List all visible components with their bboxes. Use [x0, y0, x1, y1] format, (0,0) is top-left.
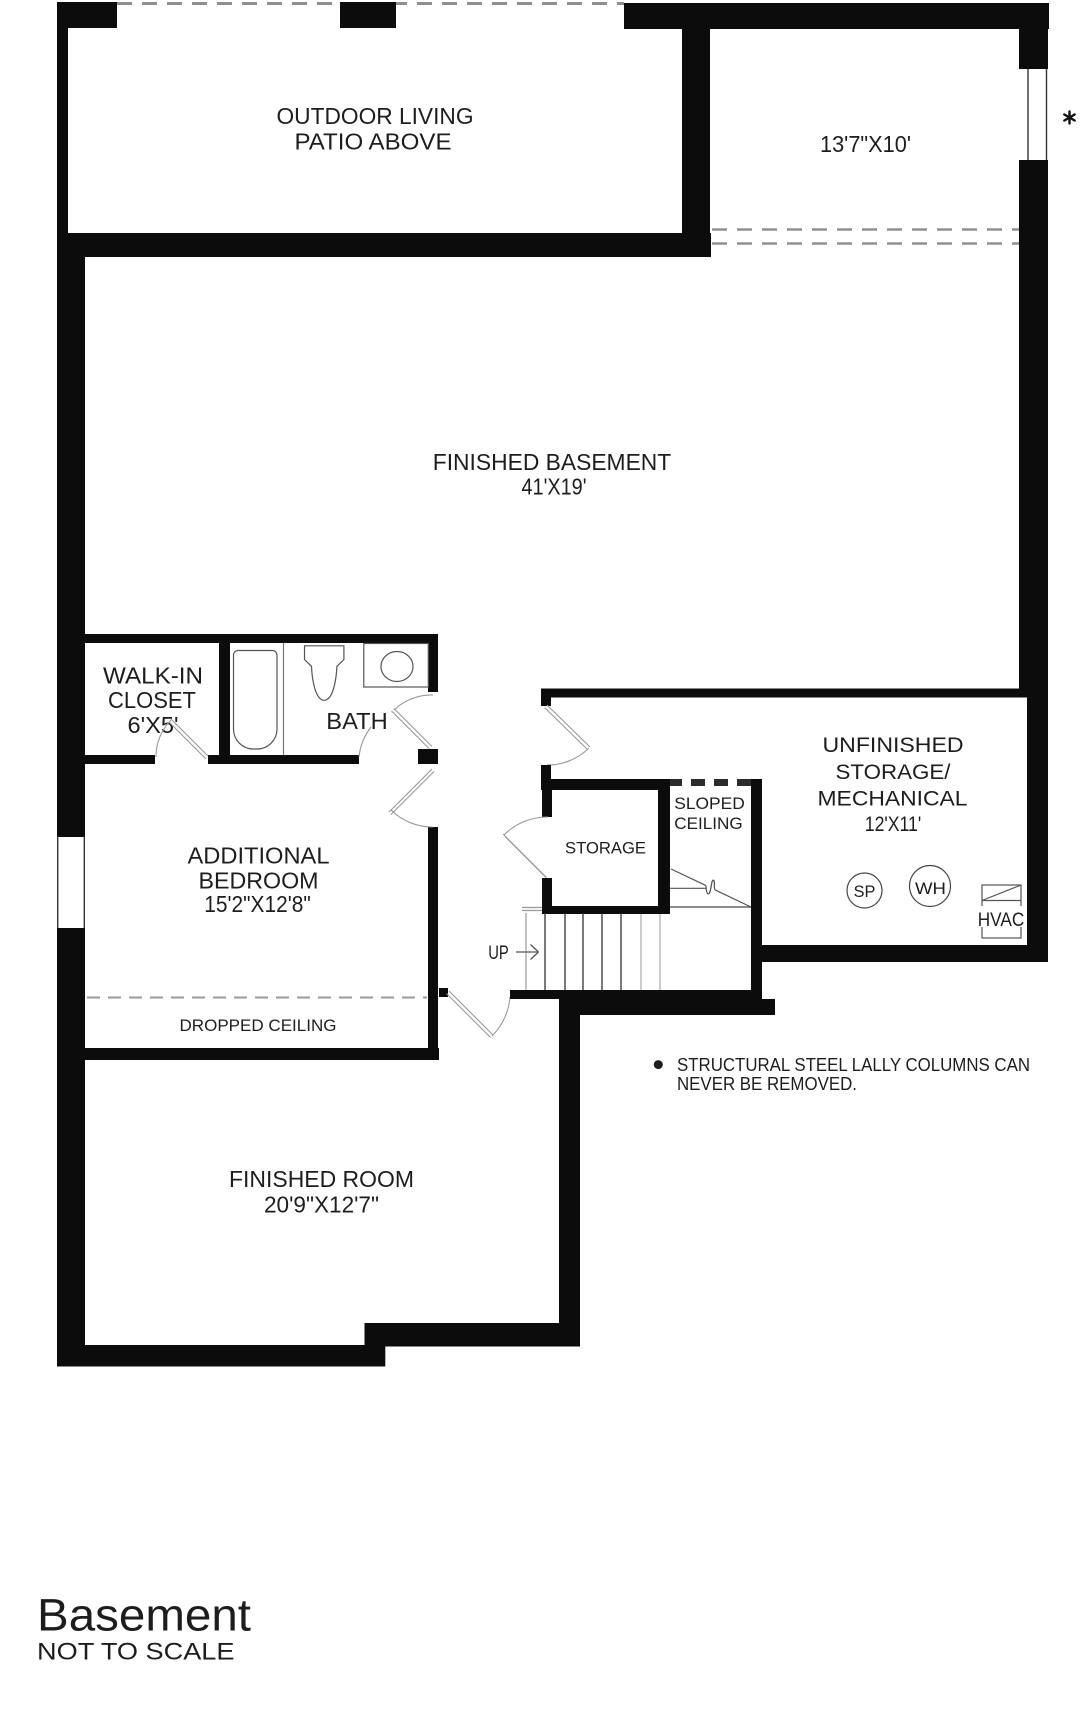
svg-text:CLOSET: CLOSET	[108, 687, 196, 713]
svg-text:SLOPED: SLOPED	[674, 794, 745, 813]
svg-text:CEILING: CEILING	[674, 814, 743, 833]
svg-text:STRUCTURAL STEEL LALLY COLUMNS: STRUCTURAL STEEL LALLY COLUMNS CAN	[677, 1054, 1030, 1075]
svg-text:20'9"X12'7": 20'9"X12'7"	[264, 1192, 379, 1218]
svg-text:PATIO ABOVE: PATIO ABOVE	[295, 129, 452, 155]
svg-text:SP: SP	[854, 882, 876, 901]
svg-text:15'2"X12'8": 15'2"X12'8"	[204, 891, 311, 917]
svg-text:STORAGE/: STORAGE/	[836, 760, 951, 784]
svg-text:NOT TO SCALE: NOT TO SCALE	[37, 1639, 235, 1666]
svg-text:DROPPED CEILING: DROPPED CEILING	[180, 1016, 337, 1035]
svg-text:BEDROOM: BEDROOM	[199, 868, 319, 894]
svg-text:NEVER BE REMOVED.: NEVER BE REMOVED.	[677, 1073, 857, 1094]
svg-text:Basement: Basement	[37, 1590, 252, 1641]
svg-text:HVAC: HVAC	[978, 910, 1025, 931]
svg-text:STORAGE: STORAGE	[565, 838, 646, 857]
svg-text:WALK-IN: WALK-IN	[103, 662, 203, 688]
svg-text:OUTDOOR LIVING: OUTDOOR LIVING	[277, 103, 474, 129]
svg-text:BATH: BATH	[326, 708, 388, 734]
svg-text:6'X5': 6'X5'	[128, 712, 179, 738]
svg-text:UP: UP	[488, 943, 509, 964]
svg-text:12'X11': 12'X11'	[865, 812, 922, 836]
svg-text:WH: WH	[915, 879, 946, 898]
svg-text:13'7"X10': 13'7"X10'	[820, 131, 911, 157]
svg-text:ADDITIONAL: ADDITIONAL	[188, 843, 330, 869]
svg-text:FINISHED BASEMENT: FINISHED BASEMENT	[433, 449, 672, 475]
svg-text:MECHANICAL: MECHANICAL	[818, 787, 968, 811]
svg-text:FINISHED ROOM: FINISHED ROOM	[229, 1166, 414, 1192]
svg-text:41'X19': 41'X19'	[522, 474, 587, 500]
svg-text:UNFINISHED: UNFINISHED	[823, 733, 964, 757]
